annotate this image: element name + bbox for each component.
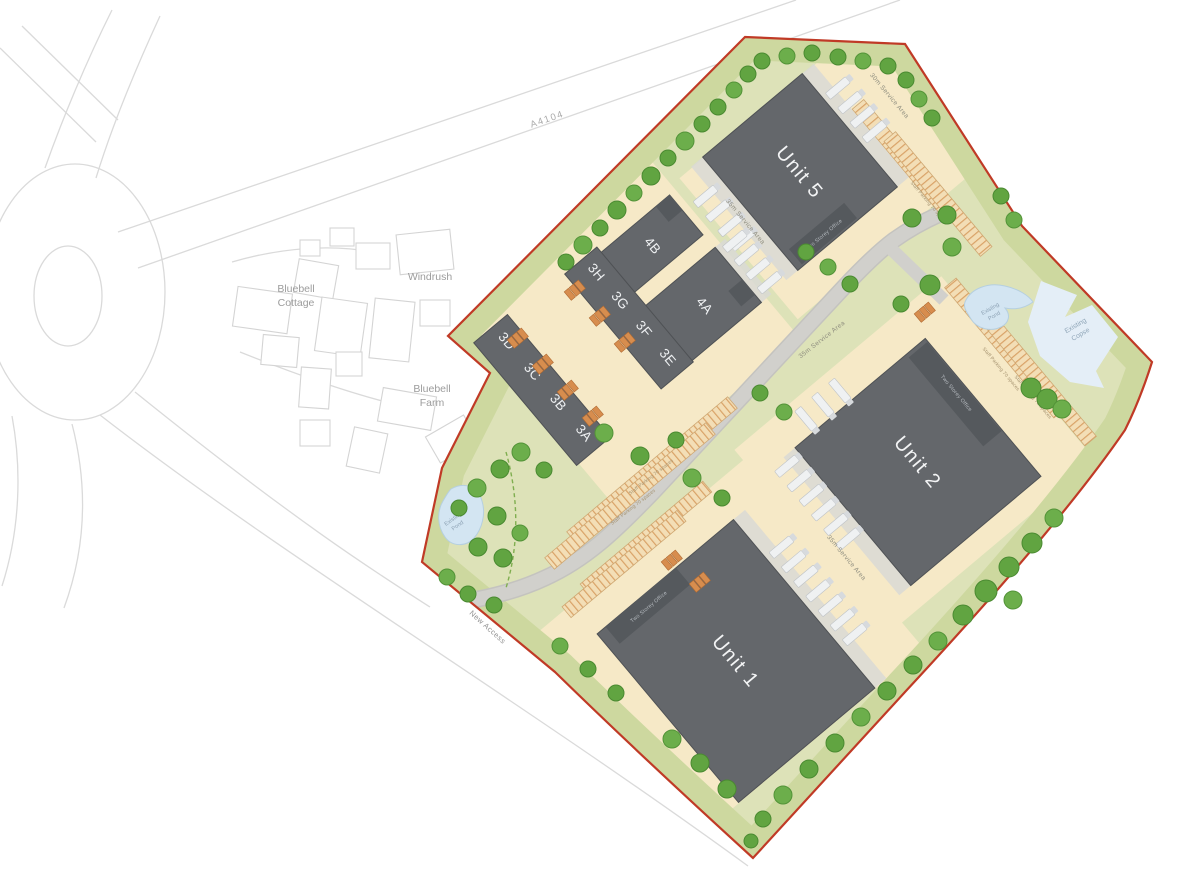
roundabout — [0, 164, 165, 420]
tree-icon — [494, 549, 512, 567]
site-plan-page: Two Storey Office Unit 5 4B 4A — [0, 0, 1200, 872]
tree-icon — [1004, 591, 1022, 609]
tree-icon — [710, 99, 726, 115]
tree-icon — [911, 91, 927, 107]
tree-icon — [740, 66, 756, 82]
context-road-line — [0, 48, 96, 142]
tree-icon — [898, 72, 914, 88]
context-road-line — [2, 416, 18, 586]
tree-icon — [830, 49, 846, 65]
tree-icon — [676, 132, 694, 150]
tree-icon — [626, 185, 642, 201]
tree-icon — [608, 201, 626, 219]
bluebell-farm-label: Bluebell — [413, 383, 450, 395]
tree-icon — [451, 500, 467, 516]
tree-icon — [486, 597, 502, 613]
tree-icon — [552, 638, 568, 654]
tree-icon — [878, 682, 896, 700]
tree-icon — [774, 786, 792, 804]
tree-icon — [595, 424, 613, 442]
tree-icon — [469, 538, 487, 556]
tree-icon — [920, 275, 940, 295]
tree-icon — [975, 580, 997, 602]
tree-icon — [929, 632, 947, 650]
tree-icon — [714, 490, 730, 506]
tree-icon — [993, 188, 1009, 204]
bluebell-farm-label: Farm — [420, 397, 445, 409]
tree-icon — [718, 780, 736, 798]
context-road-line — [45, 10, 112, 168]
context-road-line — [96, 16, 160, 178]
context-buildings — [232, 228, 478, 473]
tree-icon — [668, 432, 684, 448]
tree-icon — [491, 460, 509, 478]
tree-icon — [842, 276, 858, 292]
tree-icon — [574, 236, 592, 254]
tree-icon — [903, 209, 921, 227]
tree-icon — [999, 557, 1019, 577]
tree-icon — [820, 259, 836, 275]
roundabout-island — [34, 246, 102, 346]
tree-icon — [852, 708, 870, 726]
tree-icon — [755, 811, 771, 827]
tree-icon — [488, 507, 506, 525]
tree-icon — [754, 53, 770, 69]
tree-icon — [752, 385, 768, 401]
tree-icon — [1022, 533, 1042, 553]
tree-icon — [924, 110, 940, 126]
tree-icon — [826, 734, 844, 752]
tree-icon — [938, 206, 956, 224]
tree-icon — [536, 462, 552, 478]
tree-icon — [631, 447, 649, 465]
tree-icon — [1006, 212, 1022, 228]
windrush-label: Windrush — [408, 271, 453, 283]
site-plan-svg: Two Storey Office Unit 5 4B 4A — [0, 0, 1200, 872]
tree-icon — [779, 48, 795, 64]
tree-icon — [904, 656, 922, 674]
tree-icon — [592, 220, 608, 236]
tree-icon — [460, 586, 476, 602]
tree-icon — [439, 569, 455, 585]
tree-icon — [468, 479, 486, 497]
a4104-label: A4104 — [529, 109, 566, 131]
tree-icon — [776, 404, 792, 420]
tree-icon — [855, 53, 871, 69]
tree-icon — [558, 254, 574, 270]
bluebell-cottage-label: Bluebell — [277, 283, 314, 295]
tree-icon — [880, 58, 896, 74]
bluebell-cottage-label: Cottage — [278, 297, 315, 309]
tree-icon — [660, 150, 676, 166]
context-road-line — [64, 424, 82, 608]
tree-icon — [1045, 509, 1063, 527]
tree-icon — [608, 685, 624, 701]
tree-icon — [800, 760, 818, 778]
tree-icon — [744, 834, 758, 848]
tree-icon — [798, 244, 814, 260]
tree-icon — [953, 605, 973, 625]
tree-icon — [663, 730, 681, 748]
tree-icon — [726, 82, 742, 98]
tree-icon — [893, 296, 909, 312]
context-road-line — [135, 392, 430, 607]
tree-icon — [804, 45, 820, 61]
tree-icon — [691, 754, 709, 772]
context-road-line — [22, 26, 118, 120]
tree-icon — [694, 116, 710, 132]
tree-icon — [1053, 400, 1071, 418]
tree-icon — [512, 525, 528, 541]
tree-icon — [943, 238, 961, 256]
tree-icon — [642, 167, 660, 185]
tree-icon — [580, 661, 596, 677]
tree-icon — [683, 469, 701, 487]
tree-icon — [512, 443, 530, 461]
